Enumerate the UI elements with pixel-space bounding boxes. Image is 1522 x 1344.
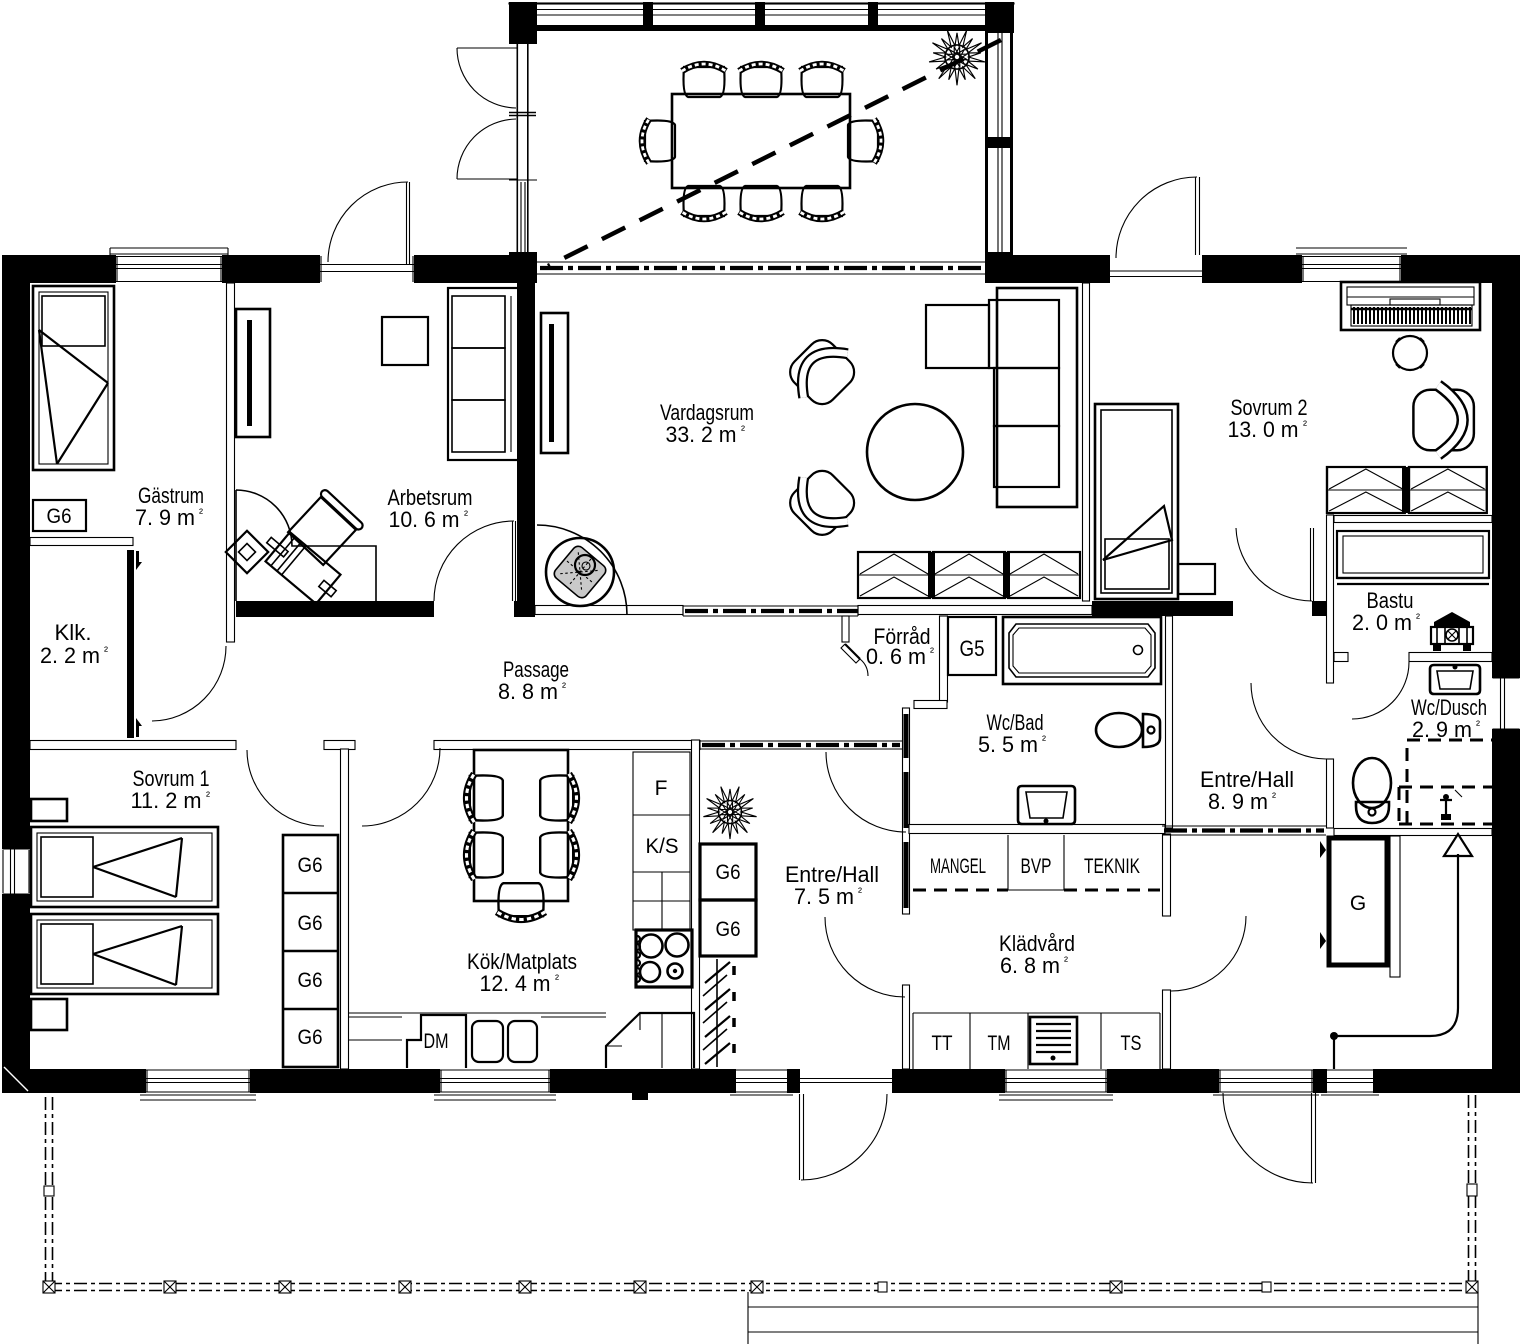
- svg-text:²: ²: [741, 423, 745, 437]
- svg-text:²: ²: [555, 972, 559, 986]
- svg-text:33. 2 m: 33. 2 m: [666, 422, 737, 447]
- svg-text:²: ²: [206, 789, 210, 803]
- svg-text:G: G: [1350, 892, 1366, 915]
- svg-text:G5: G5: [960, 636, 985, 661]
- svg-text:²: ²: [1416, 611, 1420, 625]
- svg-text:0. 6 m: 0. 6 m: [866, 644, 926, 669]
- svg-text:7. 5 m: 7. 5 m: [794, 884, 854, 909]
- svg-text:²: ²: [464, 508, 468, 522]
- svg-text:²: ²: [1303, 418, 1307, 432]
- svg-text:6. 8 m: 6. 8 m: [1000, 953, 1060, 978]
- svg-text:G6: G6: [298, 912, 323, 935]
- svg-text:F: F: [655, 777, 668, 800]
- svg-text:12. 4 m: 12. 4 m: [480, 971, 551, 996]
- svg-text:²: ²: [1476, 718, 1480, 732]
- svg-text:G6: G6: [716, 918, 741, 941]
- svg-text:G6: G6: [298, 854, 323, 877]
- svg-text:DM: DM: [424, 1030, 449, 1053]
- svg-text:G6: G6: [298, 1026, 323, 1049]
- svg-text:11. 2 m: 11. 2 m: [131, 788, 202, 813]
- svg-text:²: ²: [930, 645, 934, 659]
- svg-text:BVP: BVP: [1021, 855, 1052, 878]
- svg-text:K/S: K/S: [646, 835, 679, 858]
- svg-text:TS: TS: [1121, 1032, 1142, 1055]
- svg-text:5. 5 m: 5. 5 m: [978, 732, 1038, 757]
- svg-text:7. 9 m: 7. 9 m: [135, 505, 195, 530]
- svg-text:G6: G6: [716, 861, 741, 884]
- svg-text:TEKNIK: TEKNIK: [1084, 855, 1140, 878]
- svg-text:2. 0 m: 2. 0 m: [1352, 610, 1412, 635]
- svg-text:²: ²: [858, 885, 862, 899]
- svg-text:MANGEL: MANGEL: [930, 855, 986, 878]
- svg-text:G6: G6: [47, 505, 72, 528]
- svg-text:G6: G6: [298, 969, 323, 992]
- svg-text:²: ²: [1064, 954, 1068, 968]
- svg-text:8. 8 m: 8. 8 m: [498, 679, 558, 704]
- svg-text:Klk.: Klk.: [55, 620, 92, 645]
- svg-text:²: ²: [1042, 733, 1046, 747]
- svg-text:10. 6 m: 10. 6 m: [389, 507, 460, 532]
- svg-text:13. 0 m: 13. 0 m: [1228, 417, 1299, 442]
- svg-text:²: ²: [199, 506, 203, 520]
- svg-text:2. 2 m: 2. 2 m: [40, 643, 100, 668]
- svg-text:8. 9 m: 8. 9 m: [1208, 789, 1268, 814]
- svg-text:2. 9 m: 2. 9 m: [1412, 717, 1472, 742]
- svg-text:²: ²: [562, 680, 566, 694]
- svg-text:TT: TT: [932, 1032, 953, 1055]
- svg-text:TM: TM: [988, 1032, 1011, 1055]
- svg-text:²: ²: [104, 644, 108, 658]
- svg-text:²: ²: [1272, 790, 1276, 804]
